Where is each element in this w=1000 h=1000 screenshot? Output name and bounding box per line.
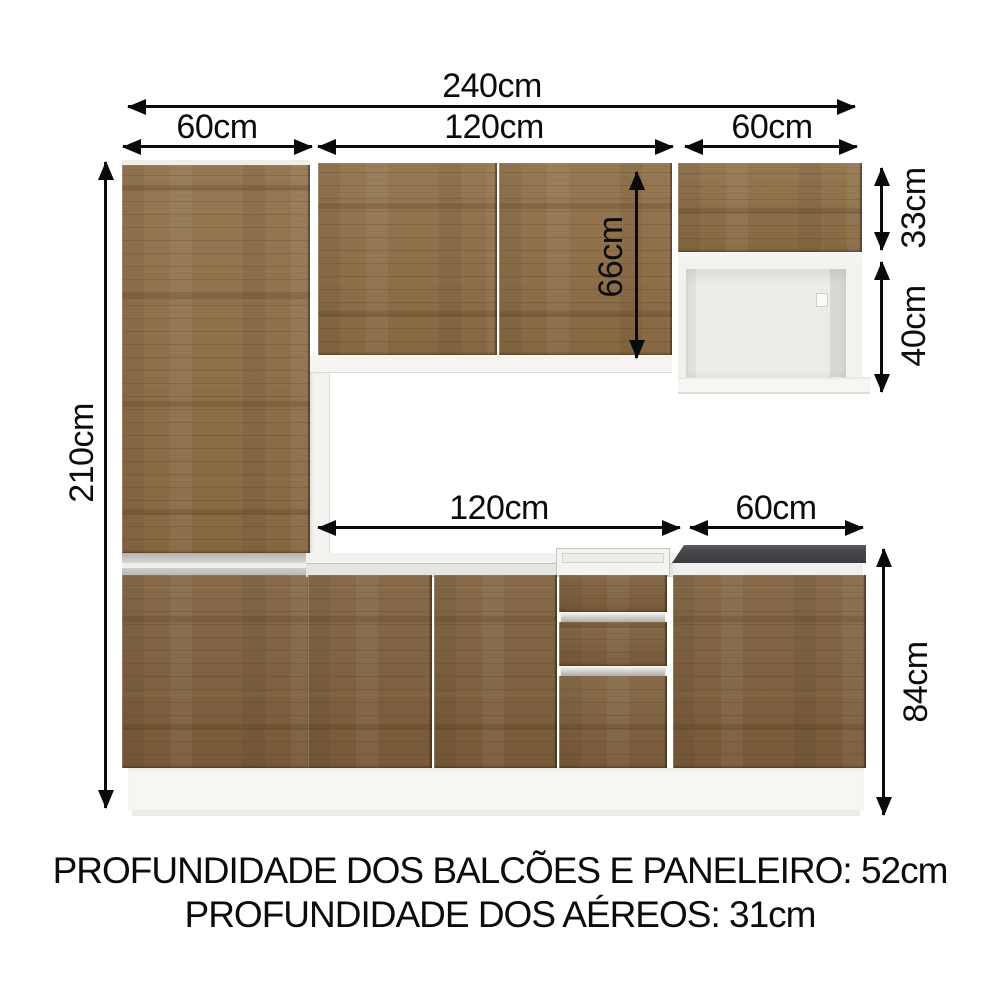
counter-inset-tray-recess [562, 553, 664, 563]
label-base-height: 84cm [899, 641, 933, 722]
label-tall-cabinet-width: 60cm [176, 110, 257, 144]
base-cabinet-door-2 [434, 575, 557, 768]
base-cabinet-right-door [673, 575, 866, 768]
upper-right-cabinet-divider-shelf [678, 252, 862, 263]
counter-right-dark-top [672, 545, 866, 563]
dimension-arrow-niche-height [880, 262, 883, 392]
drawer-front-2 [559, 622, 667, 666]
upper-middle-cabinet-bottom-shelf [310, 355, 672, 372]
tall-cabinet-trim-bottom [122, 568, 310, 575]
label-total-width: 240cm [442, 69, 542, 103]
drawer-handle-2 [561, 666, 665, 676]
drawer-front-1 [559, 575, 667, 612]
label-upper-middle-width: 120cm [444, 110, 544, 144]
tall-cabinet-trim-top [122, 553, 310, 563]
tall-cabinet-upper-door [122, 165, 310, 553]
kitchen-cabinet-dimension-diagram: 240cm 60cm 120cm 60cm 210cm 66cm 33cm 40… [0, 0, 1000, 1000]
counter-inset-tray [556, 548, 670, 576]
dimension-arrow-right-door-height [880, 168, 883, 250]
label-upper-right-width: 60cm [731, 110, 812, 144]
dimension-arrow-upper-cabinet-height [635, 172, 638, 358]
dimension-arrow-base-height [882, 549, 885, 815]
counter-right-edge [673, 563, 863, 575]
upper-middle-cabinet-left-door [318, 163, 497, 355]
footnote-depth-upper: PROFUNDIDADE DOS AÉREOS: 31cm [0, 896, 1000, 933]
floor-shadow [132, 810, 860, 816]
drawer-handle-1 [561, 612, 665, 622]
kickboard [128, 768, 864, 810]
label-total-height: 210cm [65, 403, 99, 503]
label-upper-cabinet-height: 66cm [594, 216, 628, 297]
footnote-depth-base: PROFUNDIDADE DOS BALCÕES E PANELEIRO: 52… [0, 852, 1000, 889]
drawer-front-3 [559, 676, 667, 768]
niche-bottom-shelf [678, 377, 870, 392]
open-niche [678, 263, 862, 392]
upper-right-cabinet-door [678, 163, 862, 252]
label-counter-right-width: 60cm [735, 491, 816, 525]
tall-cabinet-lower-door [122, 575, 310, 768]
base-cabinet-door-1 [308, 575, 432, 768]
niche-cavity [686, 269, 846, 377]
label-niche-height: 40cm [897, 285, 931, 366]
niche-hinge-detail [816, 293, 828, 307]
label-right-door-height: 33cm [897, 167, 931, 248]
dimension-arrow-total-height [104, 162, 107, 808]
upper-middle-cabinet-right-door [499, 163, 672, 355]
label-counter-middle-width: 120cm [449, 491, 549, 525]
